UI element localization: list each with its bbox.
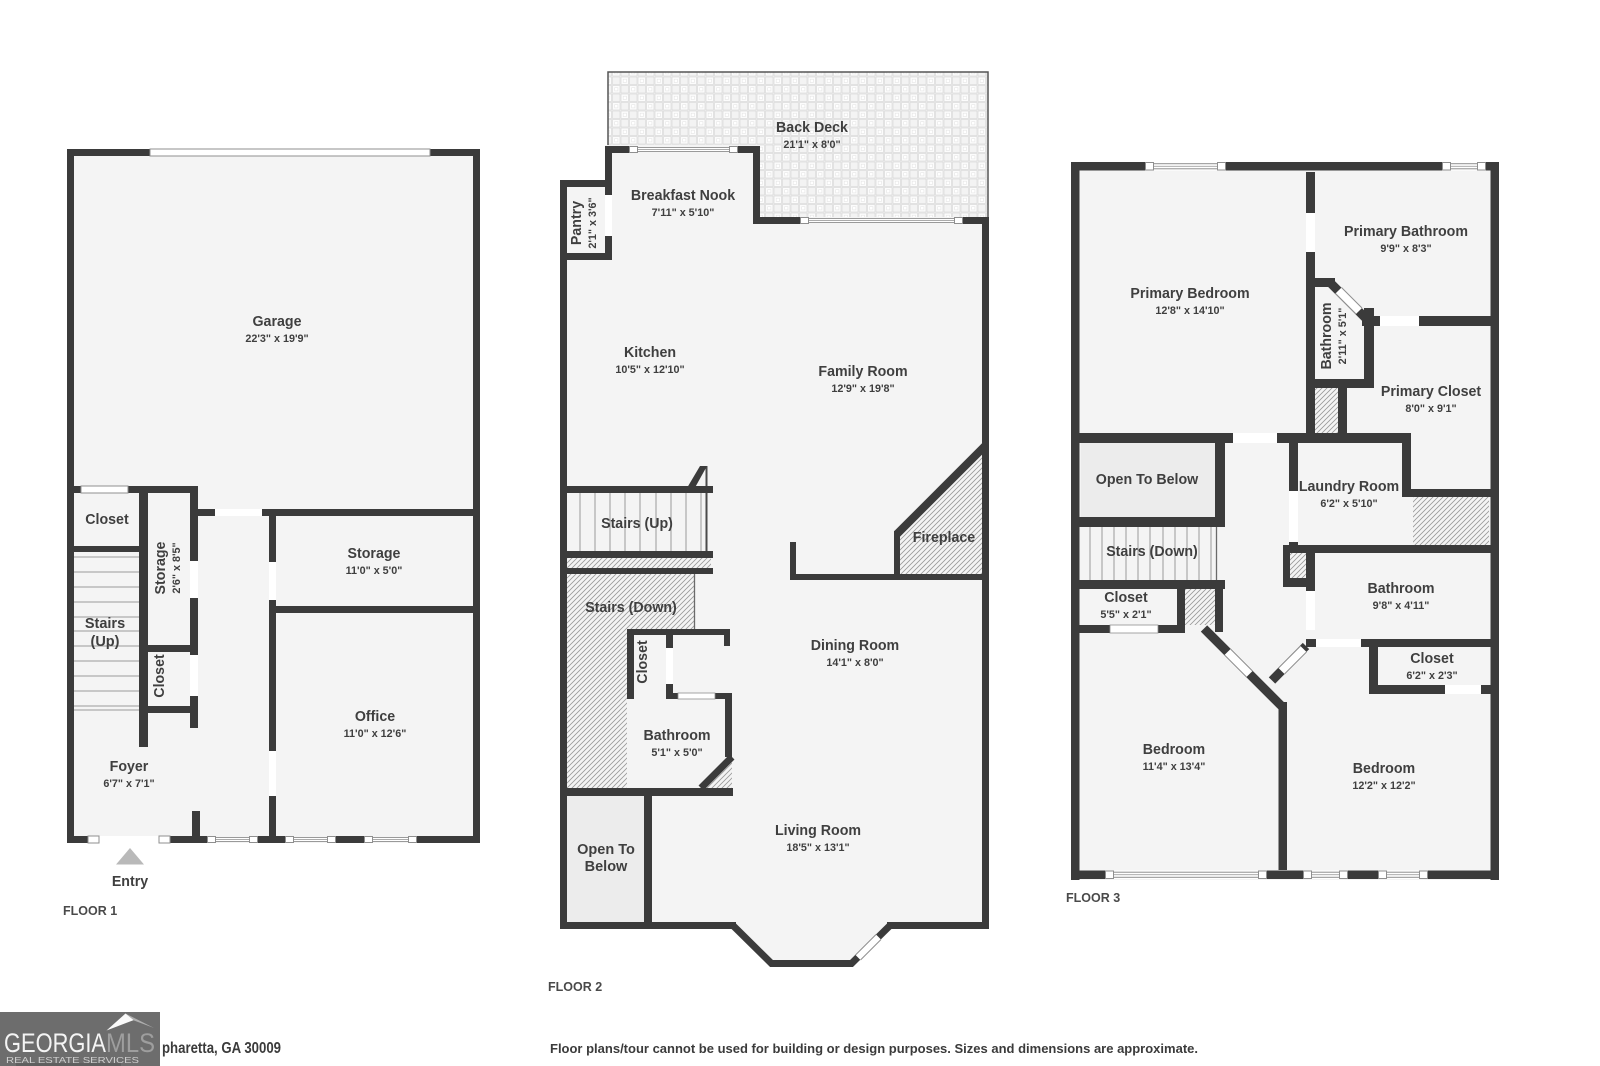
svg-text:REAL ESTATE SERVICES: REAL ESTATE SERVICES	[6, 1055, 139, 1065]
svg-text:FLOOR 2: FLOOR 2	[548, 980, 602, 994]
svg-text:Entry: Entry	[112, 874, 148, 890]
svg-text:6'2" x 5'10": 6'2" x 5'10"	[1320, 498, 1377, 510]
svg-text:Closet: Closet	[1104, 590, 1148, 606]
svg-text:14'1" x 8'0": 14'1" x 8'0"	[826, 657, 883, 669]
svg-text:Pantry: Pantry	[569, 201, 585, 245]
svg-text:5'5" x 2'1": 5'5" x 2'1"	[1100, 609, 1151, 621]
svg-text:Breakfast Nook: Breakfast Nook	[631, 188, 736, 204]
svg-text:11'4" x 13'4": 11'4" x 13'4"	[1143, 761, 1206, 773]
svg-text:12'2" x 12'2": 12'2" x 12'2"	[1352, 780, 1415, 792]
svg-text:2'1" x 3'6": 2'1" x 3'6"	[587, 197, 599, 248]
svg-text:9'9" x 8'3": 9'9" x 8'3"	[1380, 243, 1431, 255]
svg-text:Floor plans/tour cannot be use: Floor plans/tour cannot be used for buil…	[550, 1041, 1198, 1056]
svg-text:Primary Closet: Primary Closet	[1381, 384, 1481, 400]
svg-text:Closet: Closet	[85, 512, 129, 528]
svg-text:Bathroom: Bathroom	[1367, 581, 1434, 597]
svg-text:Kitchen: Kitchen	[624, 345, 676, 361]
svg-text:12'9" x 19'8": 12'9" x 19'8"	[831, 383, 894, 395]
svg-text:Closet: Closet	[635, 640, 651, 684]
svg-text:FLOOR 1: FLOOR 1	[63, 904, 117, 918]
svg-text:Storage: Storage	[348, 546, 401, 562]
svg-text:22'3" x 19'9": 22'3" x 19'9"	[245, 333, 308, 345]
svg-text:6'2" x 2'3": 6'2" x 2'3"	[1406, 670, 1457, 682]
svg-text:Primary Bedroom: Primary Bedroom	[1130, 286, 1249, 302]
svg-text:Family Room: Family Room	[818, 364, 907, 380]
svg-text:FLOOR 3: FLOOR 3	[1066, 891, 1120, 905]
svg-text:6'7" x 7'1": 6'7" x 7'1"	[103, 778, 154, 790]
svg-text:18'5" x 13'1": 18'5" x 13'1"	[786, 842, 849, 854]
svg-text:Office: Office	[355, 709, 395, 725]
svg-text:Open To Below: Open To Below	[1096, 472, 1199, 488]
svg-text:Primary Bathroom: Primary Bathroom	[1344, 224, 1468, 240]
svg-text:Fireplace: Fireplace	[913, 530, 975, 546]
svg-text:Back Deck: Back Deck	[776, 120, 849, 136]
svg-text:Bathroom: Bathroom	[643, 728, 710, 744]
svg-text:Dining Room: Dining Room	[811, 638, 899, 654]
svg-text:21'1" x 8'0": 21'1" x 8'0"	[783, 139, 840, 151]
svg-text:Garage: Garage	[253, 314, 302, 330]
svg-text:7'11" x 5'10": 7'11" x 5'10"	[652, 207, 715, 219]
svg-text:pharetta, GA 30009: pharetta, GA 30009	[162, 1040, 281, 1057]
svg-text:Stairs (Up): Stairs (Up)	[601, 516, 673, 532]
svg-text:Below: Below	[585, 859, 628, 875]
svg-text:11'0" x 5'0": 11'0" x 5'0"	[346, 565, 403, 577]
svg-text:Closet: Closet	[1410, 651, 1454, 667]
svg-text:Laundry Room: Laundry Room	[1299, 479, 1399, 495]
svg-text:12'8" x 14'10": 12'8" x 14'10"	[1155, 305, 1224, 317]
svg-text:2'6" x 8'5": 2'6" x 8'5"	[171, 542, 183, 593]
svg-text:Bedroom: Bedroom	[1143, 742, 1205, 758]
svg-text:Stairs (Down): Stairs (Down)	[1106, 544, 1198, 560]
svg-text:2'11" x 5'1": 2'11" x 5'1"	[1337, 308, 1349, 365]
svg-text:Storage: Storage	[153, 542, 169, 595]
svg-text:Stairs: Stairs	[85, 616, 125, 632]
svg-text:9'8" x 4'11": 9'8" x 4'11"	[1373, 600, 1430, 612]
svg-text:11'0" x 12'6": 11'0" x 12'6"	[344, 728, 407, 740]
svg-text:Bathroom: Bathroom	[1319, 302, 1335, 369]
svg-text:Living Room: Living Room	[775, 823, 861, 839]
svg-text:Stairs (Down): Stairs (Down)	[585, 600, 677, 616]
svg-text:8'0" x 9'1": 8'0" x 9'1"	[1405, 403, 1456, 415]
svg-text:Closet: Closet	[152, 654, 168, 698]
svg-text:Foyer: Foyer	[110, 759, 149, 775]
svg-text:GEORGIA: GEORGIA	[4, 1028, 106, 1058]
svg-text:Bedroom: Bedroom	[1353, 761, 1415, 777]
svg-text:(Up): (Up)	[91, 634, 120, 650]
svg-text:10'5" x 12'10": 10'5" x 12'10"	[615, 364, 684, 376]
svg-text:5'1" x 5'0": 5'1" x 5'0"	[651, 747, 702, 759]
svg-text:MLS: MLS	[106, 1028, 155, 1058]
svg-text:Open To: Open To	[577, 842, 635, 858]
